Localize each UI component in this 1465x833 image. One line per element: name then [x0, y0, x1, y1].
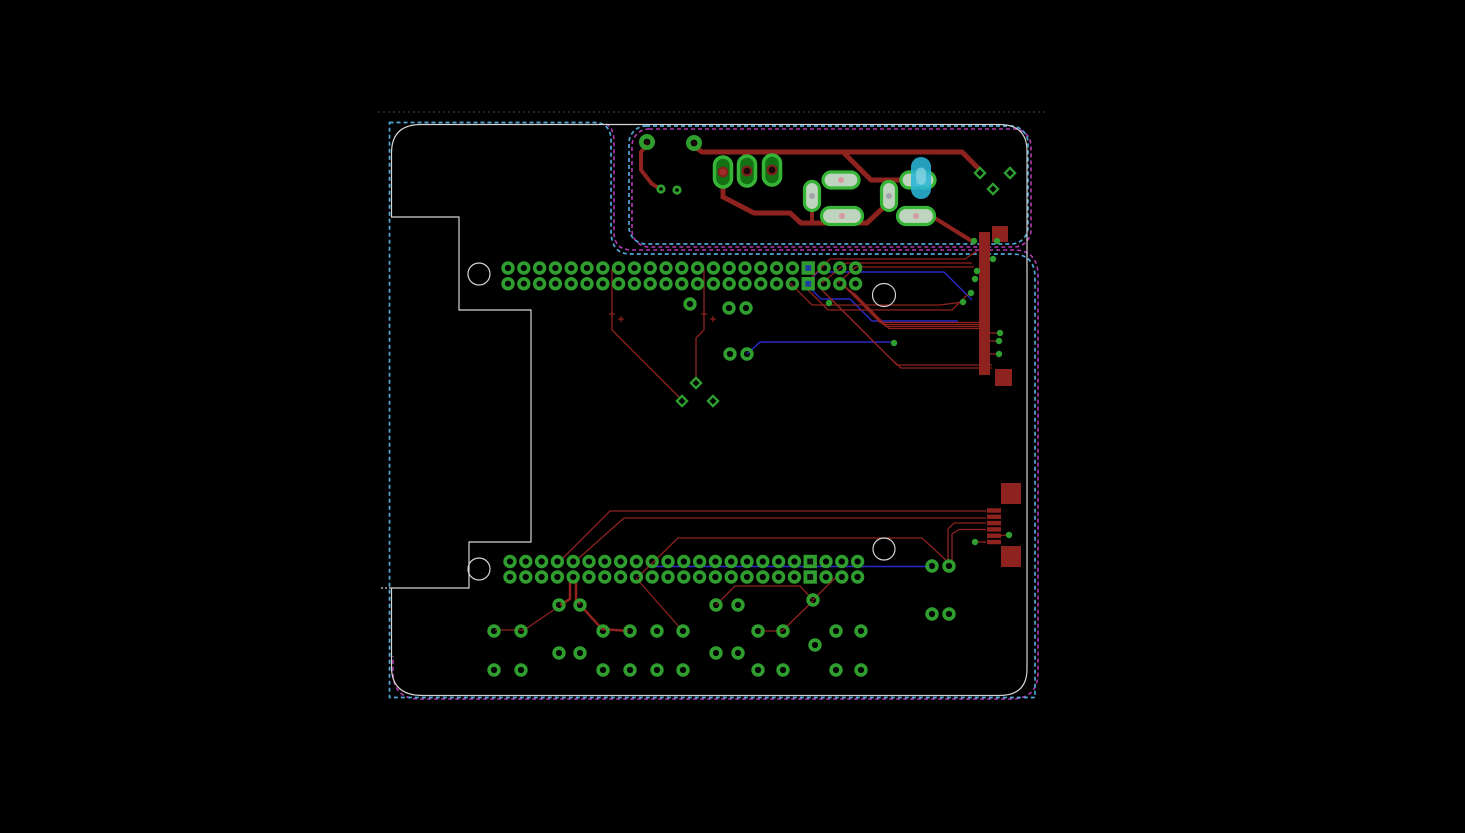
through-hole-pad[interactable] [831, 665, 841, 675]
smd-pad-center-dot [913, 213, 919, 219]
header-pin-pad[interactable] [837, 572, 847, 582]
header-pin-pad[interactable] [632, 572, 642, 582]
through-hole-pad[interactable] [724, 303, 734, 313]
through-hole-pad[interactable] [554, 600, 564, 610]
header-pin-pad[interactable] [724, 263, 734, 273]
smd-pad-center-dot [838, 177, 844, 183]
header-pin-pad[interactable] [853, 572, 863, 582]
header-pin-pad[interactable] [756, 279, 766, 289]
header-pin-pad[interactable] [726, 572, 736, 582]
mounting-hole[interactable] [468, 263, 490, 285]
smd-square-pad[interactable] [1001, 483, 1021, 504]
header-pin-pad[interactable] [537, 572, 547, 582]
header-pin-pad[interactable] [695, 572, 705, 582]
header-pin-pad[interactable] [774, 557, 784, 567]
diamond-via[interactable] [1005, 168, 1015, 178]
through-hole-pad[interactable] [753, 626, 763, 636]
red-trace[interactable] [495, 607, 558, 630]
through-hole-pad[interactable] [554, 648, 564, 658]
smd-pad-center-dot [809, 193, 815, 199]
copper-shapes[interactable] [979, 226, 1021, 567]
header-pin-pad[interactable] [551, 263, 561, 273]
via[interactable] [971, 238, 977, 244]
header-pin-pad[interactable] [835, 279, 845, 289]
through-hole-pad[interactable] [489, 665, 499, 675]
board-outline-mirror-dashed [393, 124, 1038, 699]
bottom-copper-traces[interactable] [653, 272, 972, 567]
header-pin-pad[interactable] [837, 557, 847, 567]
header-pin-pad[interactable] [614, 263, 624, 273]
header-pin-pad[interactable] [709, 279, 719, 289]
via[interactable] [997, 330, 1003, 336]
header-pin-pad[interactable] [630, 279, 640, 289]
header-pin-pad[interactable] [679, 557, 689, 567]
diamond-via[interactable] [708, 396, 718, 406]
through-hole-pad[interactable] [856, 665, 866, 675]
diamond-via[interactable] [691, 378, 701, 388]
via[interactable] [968, 290, 974, 296]
header-pin-pad[interactable] [521, 572, 531, 582]
header-top[interactable] [503, 261, 860, 290]
pad-drill-hole [768, 166, 777, 175]
header-pin-pad[interactable] [584, 557, 594, 567]
header-pin-pad[interactable] [647, 572, 657, 582]
header-square-pad-hole [805, 281, 811, 287]
through-hole-pad[interactable] [927, 561, 937, 571]
header-square-pad-hole [807, 574, 813, 580]
through-hole-pad[interactable] [575, 600, 585, 610]
diamond-via[interactable] [988, 184, 998, 194]
via[interactable] [996, 338, 1002, 344]
header-pin-pad[interactable] [740, 279, 750, 289]
header-pin-pad[interactable] [505, 572, 515, 582]
through-hole-pad[interactable] [652, 626, 662, 636]
header-pin-pad[interactable] [505, 557, 515, 567]
through-hole-pad[interactable] [575, 648, 585, 658]
header-pin-pad[interactable] [711, 572, 721, 582]
through-hole-pad[interactable] [625, 626, 635, 636]
via[interactable] [994, 238, 1000, 244]
through-hole-pad[interactable] [652, 665, 662, 675]
through-hole-pad[interactable] [927, 609, 937, 619]
header-pin-pad[interactable] [788, 263, 798, 273]
usb-pin-pad[interactable] [987, 533, 1001, 538]
header-pin-pad[interactable] [600, 557, 610, 567]
header-pin-pad[interactable] [693, 279, 703, 289]
header-pin-pad[interactable] [772, 263, 782, 273]
via[interactable] [891, 340, 897, 346]
pad-drill-hole [719, 168, 728, 177]
header-pin-pad[interactable] [679, 572, 689, 582]
header-pin-pad[interactable] [709, 263, 719, 273]
through-hole-pad[interactable] [741, 303, 751, 313]
header-pin-pad[interactable] [819, 263, 829, 273]
header-pin-pad[interactable] [821, 557, 831, 567]
header-bottom[interactable] [505, 555, 862, 584]
via[interactable] [826, 300, 832, 306]
header-pin-pad[interactable] [677, 279, 687, 289]
header-pin-pad[interactable] [758, 572, 768, 582]
through-hole-pad[interactable] [733, 600, 743, 610]
header-pin-pad[interactable] [616, 557, 626, 567]
header-square-pad-hole [807, 559, 813, 565]
power-bus-bar[interactable] [979, 232, 990, 375]
through-hole-pad[interactable] [733, 648, 743, 658]
header-pin-pad[interactable] [553, 572, 563, 582]
header-pin-pad[interactable] [582, 263, 592, 273]
through-hole-pad[interactable] [625, 665, 635, 675]
smd-pad-center-dot [886, 193, 892, 199]
pad-drill-hole [644, 139, 649, 144]
header-pin-pad[interactable] [661, 263, 671, 273]
header-pin-pad[interactable] [568, 557, 578, 567]
header-pin-pad[interactable] [537, 557, 547, 567]
through-hole-pad[interactable] [678, 665, 688, 675]
mounting-hole[interactable] [873, 538, 895, 560]
header-pin-pad[interactable] [630, 263, 640, 273]
header-pin-pad[interactable] [758, 557, 768, 567]
smd-pad-center-dot [839, 213, 845, 219]
usb-pin-pad[interactable] [987, 515, 1001, 520]
header-pin-pad[interactable] [598, 263, 608, 273]
header-pin-pad[interactable] [853, 557, 863, 567]
header-pin-pad[interactable] [663, 557, 673, 567]
header-pin-pad[interactable] [535, 263, 545, 273]
through-hole-pad[interactable] [685, 299, 695, 309]
header-pin-pad[interactable] [772, 279, 782, 289]
red-trace[interactable] [824, 292, 992, 368]
small-pad[interactable] [658, 186, 664, 192]
through-hole-pad[interactable] [944, 561, 954, 571]
header-pin-pad[interactable] [566, 279, 576, 289]
red-trace[interactable] [716, 586, 812, 605]
diamond-via[interactable] [677, 396, 687, 406]
header-pin-pad[interactable] [724, 279, 734, 289]
header-pin-pad[interactable] [819, 279, 829, 289]
through-hole-pad[interactable] [831, 626, 841, 636]
red-trace[interactable] [783, 601, 813, 630]
smd-square-pad[interactable] [1001, 546, 1021, 567]
via[interactable] [960, 299, 966, 305]
header-pin-pad[interactable] [742, 572, 752, 582]
red-trace-thick[interactable] [641, 145, 659, 188]
red-trace[interactable] [952, 530, 986, 561]
via[interactable] [972, 276, 978, 282]
through-hole-pad[interactable] [725, 349, 735, 359]
header-pin-pad[interactable] [740, 263, 750, 273]
header-pin-pad[interactable] [647, 557, 657, 567]
header-pin-pad[interactable] [568, 572, 578, 582]
header-pin-pad[interactable] [632, 557, 642, 567]
board-outline-dashed [390, 123, 1036, 698]
through-hole-pad[interactable] [944, 609, 954, 619]
header-pin-pad[interactable] [742, 557, 752, 567]
header-pin-pad[interactable] [614, 279, 624, 289]
via[interactable] [990, 256, 996, 262]
red-trace[interactable] [636, 578, 681, 629]
header-pin-pad[interactable] [790, 557, 800, 567]
small-pad[interactable] [674, 187, 680, 193]
header-pin-pad[interactable] [726, 557, 736, 567]
pad-drill-hole [691, 140, 696, 145]
mounting-hole[interactable] [873, 284, 896, 307]
header-pin-pad[interactable] [535, 279, 545, 289]
via[interactable] [972, 539, 978, 545]
through-hole-pad[interactable] [516, 626, 526, 636]
red-trace-thick[interactable] [933, 217, 975, 243]
through-hole-pad[interactable] [856, 626, 866, 636]
header-pin-pad[interactable] [566, 263, 576, 273]
usb-pin-pad[interactable] [987, 540, 1001, 545]
header-pin-pad[interactable] [519, 263, 529, 273]
usb-pin-pad[interactable] [987, 527, 1001, 532]
cyan-component-highlight [916, 168, 926, 186]
through-hole-pad[interactable] [810, 640, 820, 650]
header-pin-pad[interactable] [645, 279, 655, 289]
pad-drill-hole [743, 167, 752, 176]
through-hole-pad[interactable] [598, 665, 608, 675]
via[interactable] [974, 268, 980, 274]
header-pin-pad[interactable] [821, 572, 831, 582]
header-pin-pad[interactable] [503, 263, 513, 273]
origin-marks [609, 311, 716, 322]
header-pin-pad[interactable] [551, 279, 561, 289]
through-hole-pad[interactable] [516, 665, 526, 675]
header-pin-pad[interactable] [788, 279, 798, 289]
header-pin-pad[interactable] [521, 557, 531, 567]
via[interactable] [996, 351, 1002, 357]
mounting-hole[interactable] [468, 558, 490, 580]
blue-trace[interactable] [747, 342, 894, 354]
header-pin-pad[interactable] [774, 572, 784, 582]
header-pin-pad[interactable] [693, 263, 703, 273]
header-pin-pad[interactable] [600, 572, 610, 582]
header-pin-pad[interactable] [695, 557, 705, 567]
header-pin-pad[interactable] [519, 279, 529, 289]
header-pin-pad[interactable] [503, 279, 513, 289]
header-pin-pad[interactable] [616, 572, 626, 582]
through-hole-pad[interactable] [778, 665, 788, 675]
pcb-editor-canvas[interactable] [0, 0, 1465, 833]
header-pin-pad[interactable] [790, 572, 800, 582]
usb-pin-pad[interactable] [987, 521, 1001, 526]
header-pin-pad[interactable] [598, 279, 608, 289]
usb-pin-pad[interactable] [987, 508, 1001, 513]
header-pin-pad[interactable] [677, 263, 687, 273]
through-hole-pad[interactable] [711, 648, 721, 658]
header-pin-pad[interactable] [756, 263, 766, 273]
through-hole-pad[interactable] [489, 626, 499, 636]
header-pin-pad[interactable] [851, 279, 861, 289]
header-pin-pad[interactable] [711, 557, 721, 567]
through-hole-pad[interactable] [753, 665, 763, 675]
header-square-pad-hole [805, 265, 811, 271]
through-hole-pad[interactable] [678, 626, 688, 636]
pcb-drawing[interactable] [0, 0, 1465, 833]
smd-square-pad[interactable] [995, 369, 1012, 386]
via[interactable] [1006, 532, 1012, 538]
header-pin-pad[interactable] [584, 572, 594, 582]
header-pin-pad[interactable] [553, 557, 563, 567]
header-pin-pad[interactable] [661, 279, 671, 289]
header-pin-pad[interactable] [582, 279, 592, 289]
header-pin-pad[interactable] [645, 263, 655, 273]
header-pin-pad[interactable] [663, 572, 673, 582]
through-hole-pad[interactable] [598, 626, 608, 636]
